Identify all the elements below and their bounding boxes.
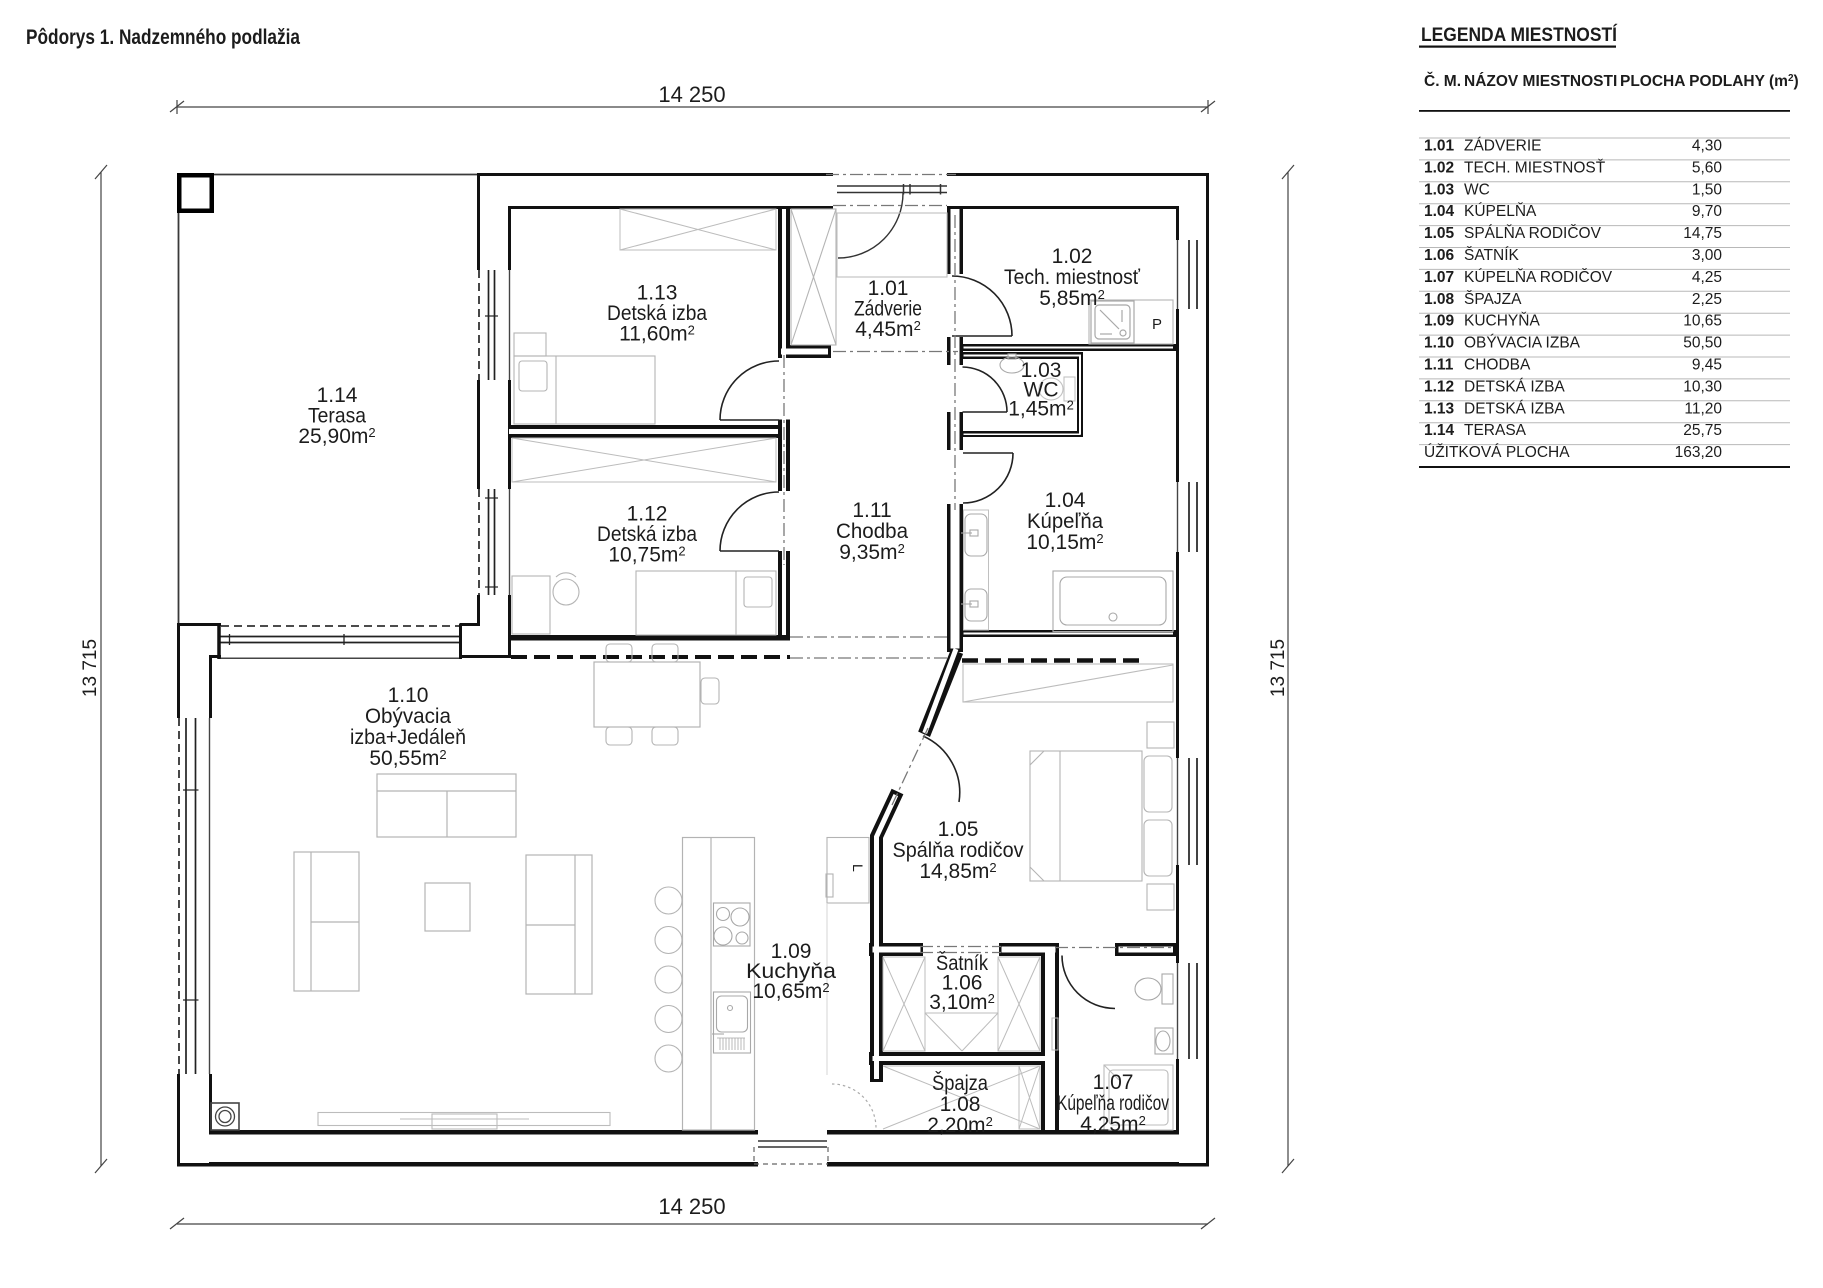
- svg-text:1.14: 1.14: [1424, 422, 1455, 439]
- svg-text:Spálňa rodičov: Spálňa rodičov: [893, 839, 1024, 862]
- svg-text:10,65m2: 10,65m2: [752, 980, 829, 1003]
- svg-text:10,65: 10,65: [1683, 313, 1722, 330]
- svg-text:L: L: [850, 864, 866, 872]
- svg-text:5,85m2: 5,85m2: [1039, 287, 1105, 310]
- svg-text:10,75m2: 10,75m2: [608, 544, 685, 567]
- svg-text:3,00: 3,00: [1692, 247, 1723, 264]
- svg-text:WC: WC: [1464, 181, 1490, 198]
- svg-text:KÚPELŇA RODIČOV: KÚPELŇA RODIČOV: [1464, 269, 1613, 286]
- svg-text:TECH. MIESTNOSŤ: TECH. MIESTNOSŤ: [1464, 159, 1606, 176]
- svg-text:1.05: 1.05: [1424, 225, 1455, 242]
- svg-text:2,25: 2,25: [1692, 291, 1722, 308]
- svg-text:Chodba: Chodba: [836, 520, 908, 543]
- svg-text:1.06: 1.06: [1424, 247, 1455, 264]
- svg-text:1.02: 1.02: [1424, 159, 1454, 176]
- svg-text:14 250: 14 250: [658, 82, 725, 107]
- svg-text:1,50: 1,50: [1692, 181, 1723, 198]
- svg-text:3,10m2: 3,10m2: [929, 991, 995, 1014]
- svg-text:P: P: [1152, 316, 1162, 333]
- svg-text:Tech. miestnosť: Tech. miestnosť: [1004, 266, 1141, 289]
- svg-text:50,50: 50,50: [1683, 335, 1722, 352]
- svg-text:10,15m2: 10,15m2: [1026, 531, 1103, 554]
- svg-text:1.09: 1.09: [1424, 313, 1455, 330]
- svg-text:Pôdorys 1. Nadzemného podlažia: Pôdorys 1. Nadzemného podlažia: [26, 26, 300, 49]
- svg-text:14,75: 14,75: [1683, 225, 1722, 242]
- svg-text:KUCHYŇA: KUCHYŇA: [1464, 313, 1540, 330]
- svg-text:Kúpeľňa: Kúpeľňa: [1027, 510, 1103, 533]
- svg-text:PLOCHA PODLAHY (m2): PLOCHA PODLAHY (m2): [1620, 73, 1799, 90]
- svg-text:13 715: 13 715: [1268, 639, 1289, 697]
- svg-text:50,55m2: 50,55m2: [369, 747, 446, 770]
- svg-text:4,25: 4,25: [1692, 269, 1722, 286]
- svg-text:Špajza: Špajza: [932, 1072, 988, 1095]
- svg-text:1.07: 1.07: [1424, 269, 1454, 286]
- svg-text:TERASA: TERASA: [1464, 422, 1527, 439]
- svg-text:ZÁDVERIE: ZÁDVERIE: [1464, 138, 1542, 155]
- svg-text:14 250: 14 250: [658, 1194, 725, 1219]
- svg-text:2,20m2: 2,20m2: [927, 1114, 993, 1137]
- svg-text:11,20: 11,20: [1684, 400, 1722, 417]
- svg-text:4,45m2: 4,45m2: [855, 318, 921, 341]
- svg-text:1.11: 1.11: [852, 499, 891, 522]
- svg-text:1.05: 1.05: [938, 818, 979, 841]
- svg-text:ŠATNÍK: ŠATNÍK: [1464, 247, 1519, 264]
- svg-text:1.04: 1.04: [1045, 489, 1086, 512]
- svg-text:SPÁLŇA RODIČOV: SPÁLŇA RODIČOV: [1464, 225, 1602, 242]
- svg-text:CHODBA: CHODBA: [1464, 357, 1531, 374]
- svg-text:KÚPELŇA: KÚPELŇA: [1464, 203, 1537, 220]
- svg-text:5,60: 5,60: [1692, 159, 1723, 176]
- svg-text:14,85m2: 14,85m2: [919, 860, 996, 883]
- svg-text:1.07: 1.07: [1093, 1071, 1134, 1094]
- svg-text:4,30: 4,30: [1692, 138, 1723, 155]
- svg-text:1,45m2: 1,45m2: [1008, 398, 1074, 421]
- svg-text:1.11: 1.11: [1424, 357, 1454, 374]
- svg-text:9,45: 9,45: [1692, 357, 1722, 374]
- svg-text:Č. M.: Č. M.: [1424, 72, 1461, 90]
- svg-text:DETSKÁ IZBA: DETSKÁ IZBA: [1464, 400, 1565, 417]
- svg-text:13 715: 13 715: [80, 639, 101, 697]
- svg-text:10,30: 10,30: [1683, 378, 1722, 395]
- svg-text:1.02: 1.02: [1052, 245, 1093, 268]
- svg-text:1.10: 1.10: [388, 684, 429, 707]
- svg-text:NÁZOV MIESTNOSTI: NÁZOV MIESTNOSTI: [1464, 73, 1617, 90]
- svg-text:163,20: 163,20: [1675, 444, 1723, 461]
- svg-text:Obývacia: Obývacia: [365, 705, 451, 728]
- svg-text:Kúpeľňa rodičov: Kúpeľňa rodičov: [1057, 1092, 1169, 1115]
- svg-text:1.08: 1.08: [940, 1093, 981, 1116]
- svg-text:9,70: 9,70: [1692, 203, 1723, 220]
- svg-text:ÚŽITKOVÁ PLOCHA: ÚŽITKOVÁ PLOCHA: [1424, 444, 1570, 461]
- svg-text:25,75: 25,75: [1683, 422, 1722, 439]
- svg-text:LEGENDA MIESTNOSTÍ: LEGENDA MIESTNOSTÍ: [1421, 24, 1618, 46]
- svg-text:1.13: 1.13: [1424, 400, 1455, 417]
- svg-text:OBÝVACIA IZBA: OBÝVACIA IZBA: [1464, 335, 1581, 352]
- svg-text:ŠPAJZA: ŠPAJZA: [1464, 291, 1522, 308]
- svg-text:1.08: 1.08: [1424, 291, 1455, 308]
- svg-text:4,25m2: 4,25m2: [1080, 1113, 1146, 1136]
- svg-text:1.01: 1.01: [1424, 138, 1455, 155]
- svg-text:izba+Jedáleň: izba+Jedáleň: [350, 726, 466, 749]
- svg-text:25,90m2: 25,90m2: [298, 425, 375, 448]
- svg-text:9,35m2: 9,35m2: [839, 541, 905, 564]
- svg-text:1.03: 1.03: [1424, 181, 1455, 198]
- svg-text:1.10: 1.10: [1424, 335, 1454, 352]
- svg-text:DETSKÁ IZBA: DETSKÁ IZBA: [1464, 378, 1565, 395]
- svg-text:1.12: 1.12: [1424, 378, 1454, 395]
- svg-text:1.04: 1.04: [1424, 203, 1455, 220]
- svg-text:11,60m2: 11,60m2: [619, 323, 695, 346]
